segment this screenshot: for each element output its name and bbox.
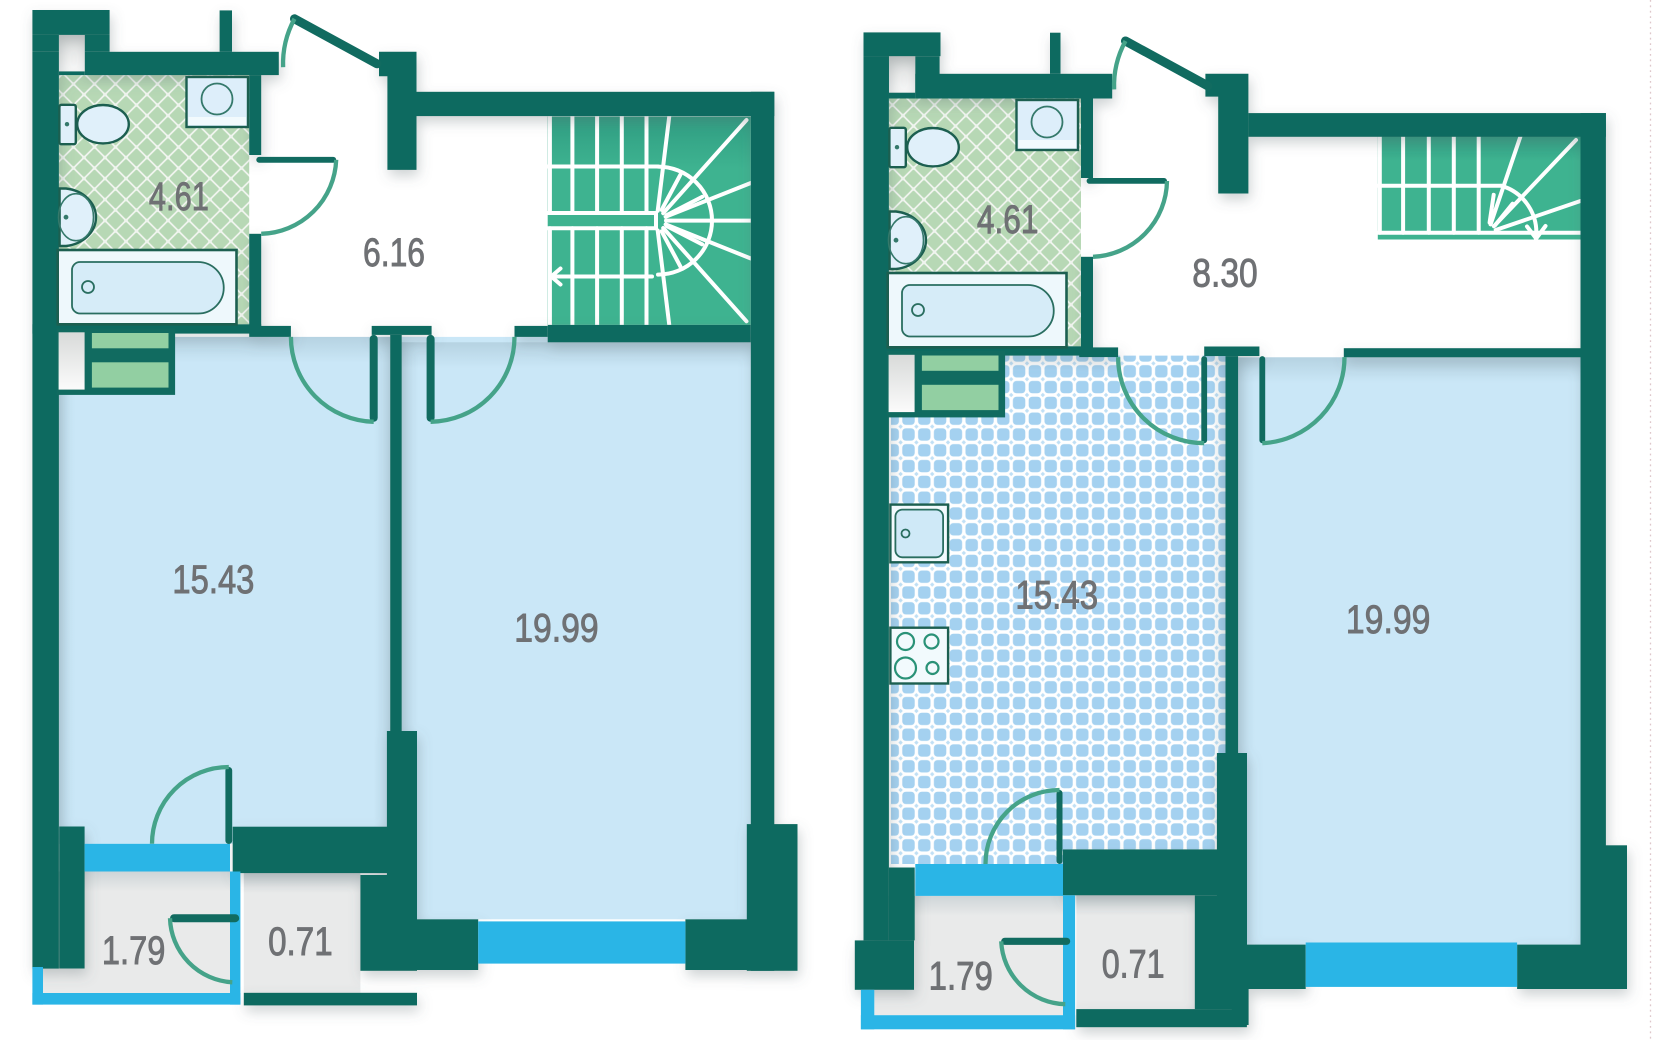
svg-text:4.61: 4.61 bbox=[977, 198, 1039, 242]
svg-text:4.61: 4.61 bbox=[149, 175, 209, 219]
svg-text:0.71: 0.71 bbox=[268, 920, 333, 964]
svg-text:0.71: 0.71 bbox=[1102, 943, 1165, 987]
svg-text:6.16: 6.16 bbox=[363, 231, 425, 275]
svg-text:15.43: 15.43 bbox=[172, 558, 254, 602]
svg-text:1.79: 1.79 bbox=[102, 929, 166, 973]
svg-text:19.99: 19.99 bbox=[1346, 598, 1431, 642]
svg-text:15.43: 15.43 bbox=[1015, 574, 1098, 618]
svg-text:19.99: 19.99 bbox=[514, 607, 599, 651]
svg-text:1.79: 1.79 bbox=[929, 955, 993, 999]
svg-text:8.30: 8.30 bbox=[1192, 252, 1257, 296]
